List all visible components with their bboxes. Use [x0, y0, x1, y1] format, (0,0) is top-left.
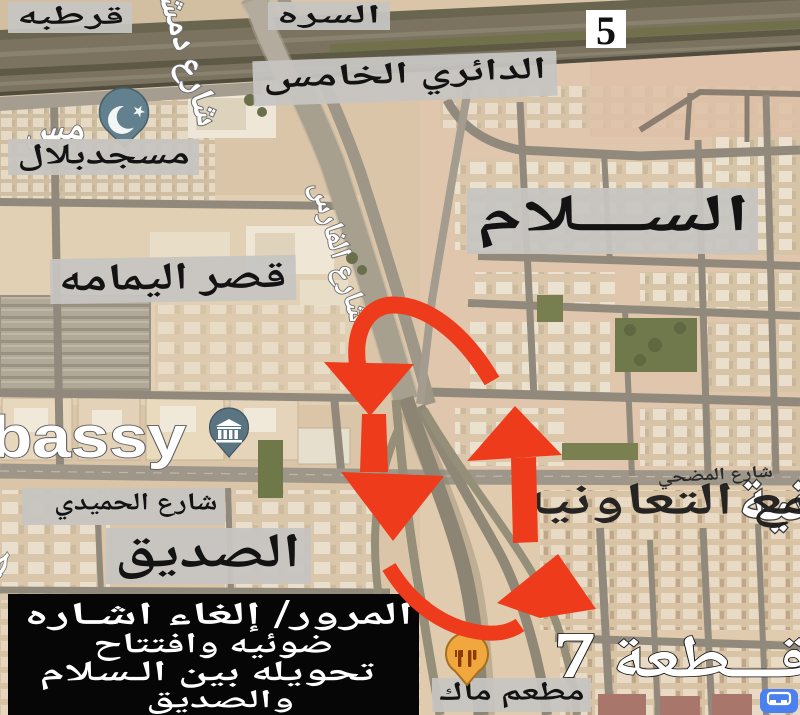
svg-text:5: 5 — [596, 8, 616, 53]
svg-text:bassy: bassy — [0, 405, 186, 470]
